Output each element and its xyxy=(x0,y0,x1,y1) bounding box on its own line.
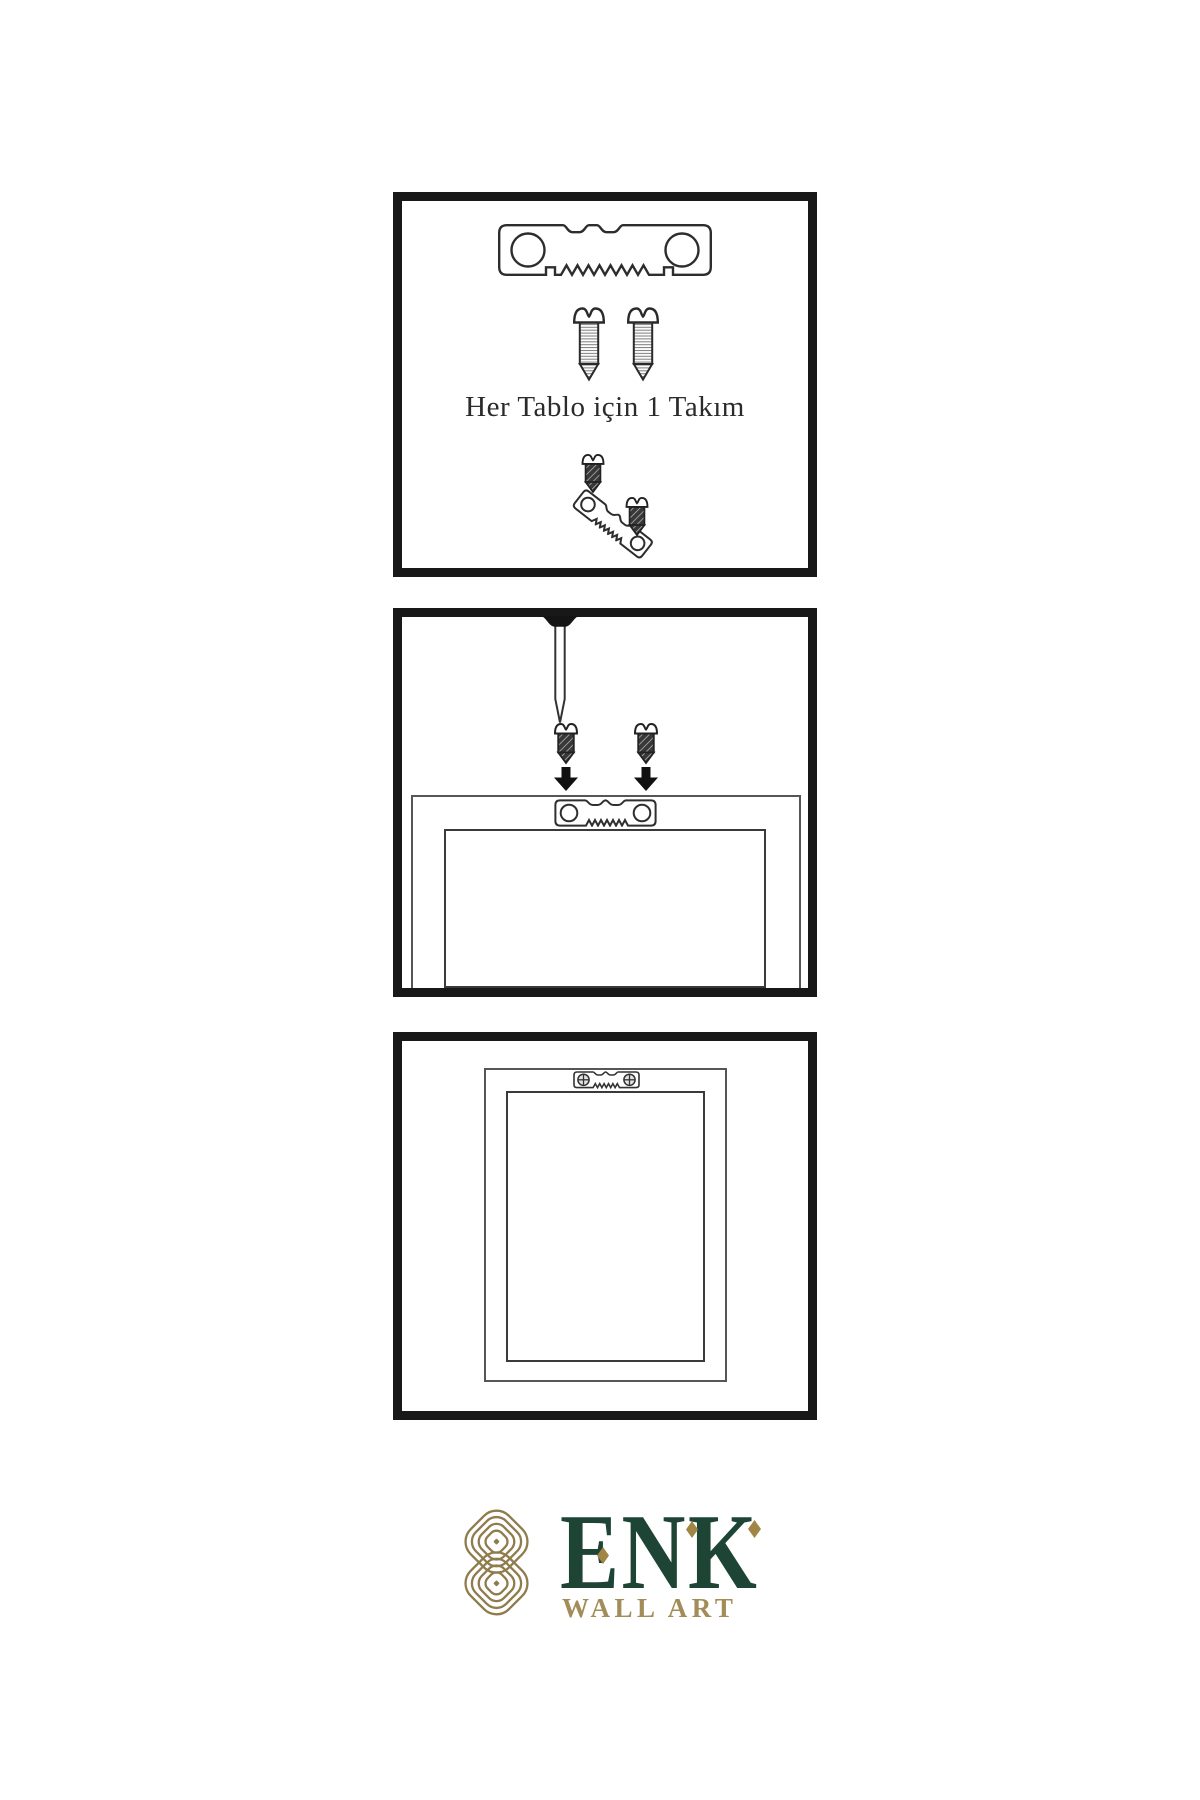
dark-screw-icon xyxy=(553,721,579,765)
dark-screw-icon xyxy=(580,453,606,493)
dark-screw-icon xyxy=(633,721,659,765)
frame-inner-outline xyxy=(506,1091,705,1362)
instruction-sheet: Her Tablo için 1 Takım xyxy=(0,0,1200,1800)
frame-inner-outline xyxy=(444,829,766,988)
arrow-down-icon xyxy=(633,767,659,791)
brand-subtitle: WALL ART xyxy=(562,1592,737,1624)
screw-icon xyxy=(626,306,660,382)
arrow-down-icon xyxy=(553,767,579,791)
logo-knot-icon xyxy=(440,1500,553,1625)
installed-hanger-icon xyxy=(573,1071,640,1089)
nail-icon xyxy=(541,616,579,724)
sawtooth-hanger-plate-icon xyxy=(554,799,657,827)
sawtooth-hanger-icon xyxy=(497,223,713,277)
screw-icon xyxy=(572,306,606,382)
dark-screw-icon xyxy=(624,496,650,536)
step-1-caption: Her Tablo için 1 Takım xyxy=(393,389,817,425)
